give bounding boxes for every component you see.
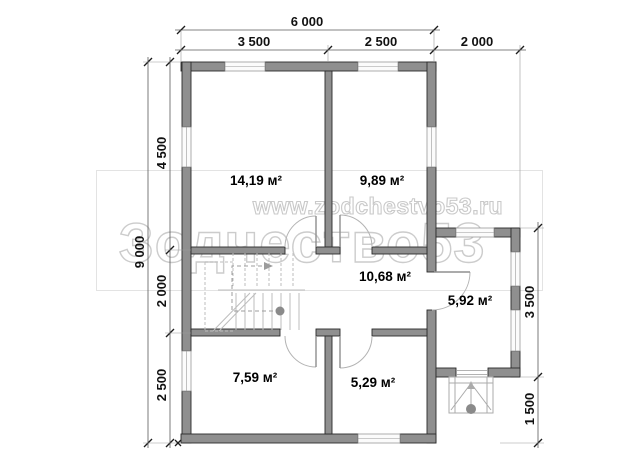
dim-top-ext: 2 000 [461,34,494,49]
door-icon [340,336,372,368]
window-icon [182,351,191,391]
dim-right-ext: 3 500 [522,286,537,319]
window-icon [358,62,398,71]
window-icon [182,127,191,167]
window-icon [456,228,494,237]
window-icon [225,62,265,71]
door-icon [285,336,316,367]
window-icon [427,127,436,167]
porch-steps-icon [449,377,493,414]
room-area-label: 14,19 м² [230,173,283,188]
dim-top-total: 6 000 [291,14,324,29]
room-area-label: 10,68 м² [359,269,412,284]
dim-left-top: 4 500 [154,137,169,170]
dim-left-total: 9 000 [132,236,147,269]
room-labels: 14,19 м² 9,89 м² 10,68 м² 5,92 м² 7,59 м… [230,173,493,390]
window-icon [511,310,520,351]
entrance-threshold [456,371,488,375]
room-area-label: 9,89 м² [360,173,405,188]
dim-left-bottom: 2 500 [154,369,169,402]
dimension-labels: 6 000 3 500 2 500 2 000 9 000 4 500 2 00… [132,14,537,425]
dim-top-right: 2 500 [365,34,398,49]
room-area-label: 7,59 м² [233,370,278,385]
staircase-icon [205,253,305,331]
floor-plan-drawing: 6 000 3 500 2 500 2 000 9 000 4 500 2 00… [0,0,640,470]
floor-plan-screenshot: www.zodchestvo53.ru Зодчество53 [0,0,640,470]
dim-right-porch: 1 500 [522,393,537,426]
dim-top-left: 3 500 [238,34,271,49]
window-icon [511,252,520,286]
door-icon [340,215,372,247]
room-area-label: 5,29 м² [351,375,396,390]
window-icon [358,434,400,443]
door-icon [285,216,316,247]
dim-left-middle: 2 000 [154,275,169,308]
room-area-label: 5,92 м² [448,293,493,308]
